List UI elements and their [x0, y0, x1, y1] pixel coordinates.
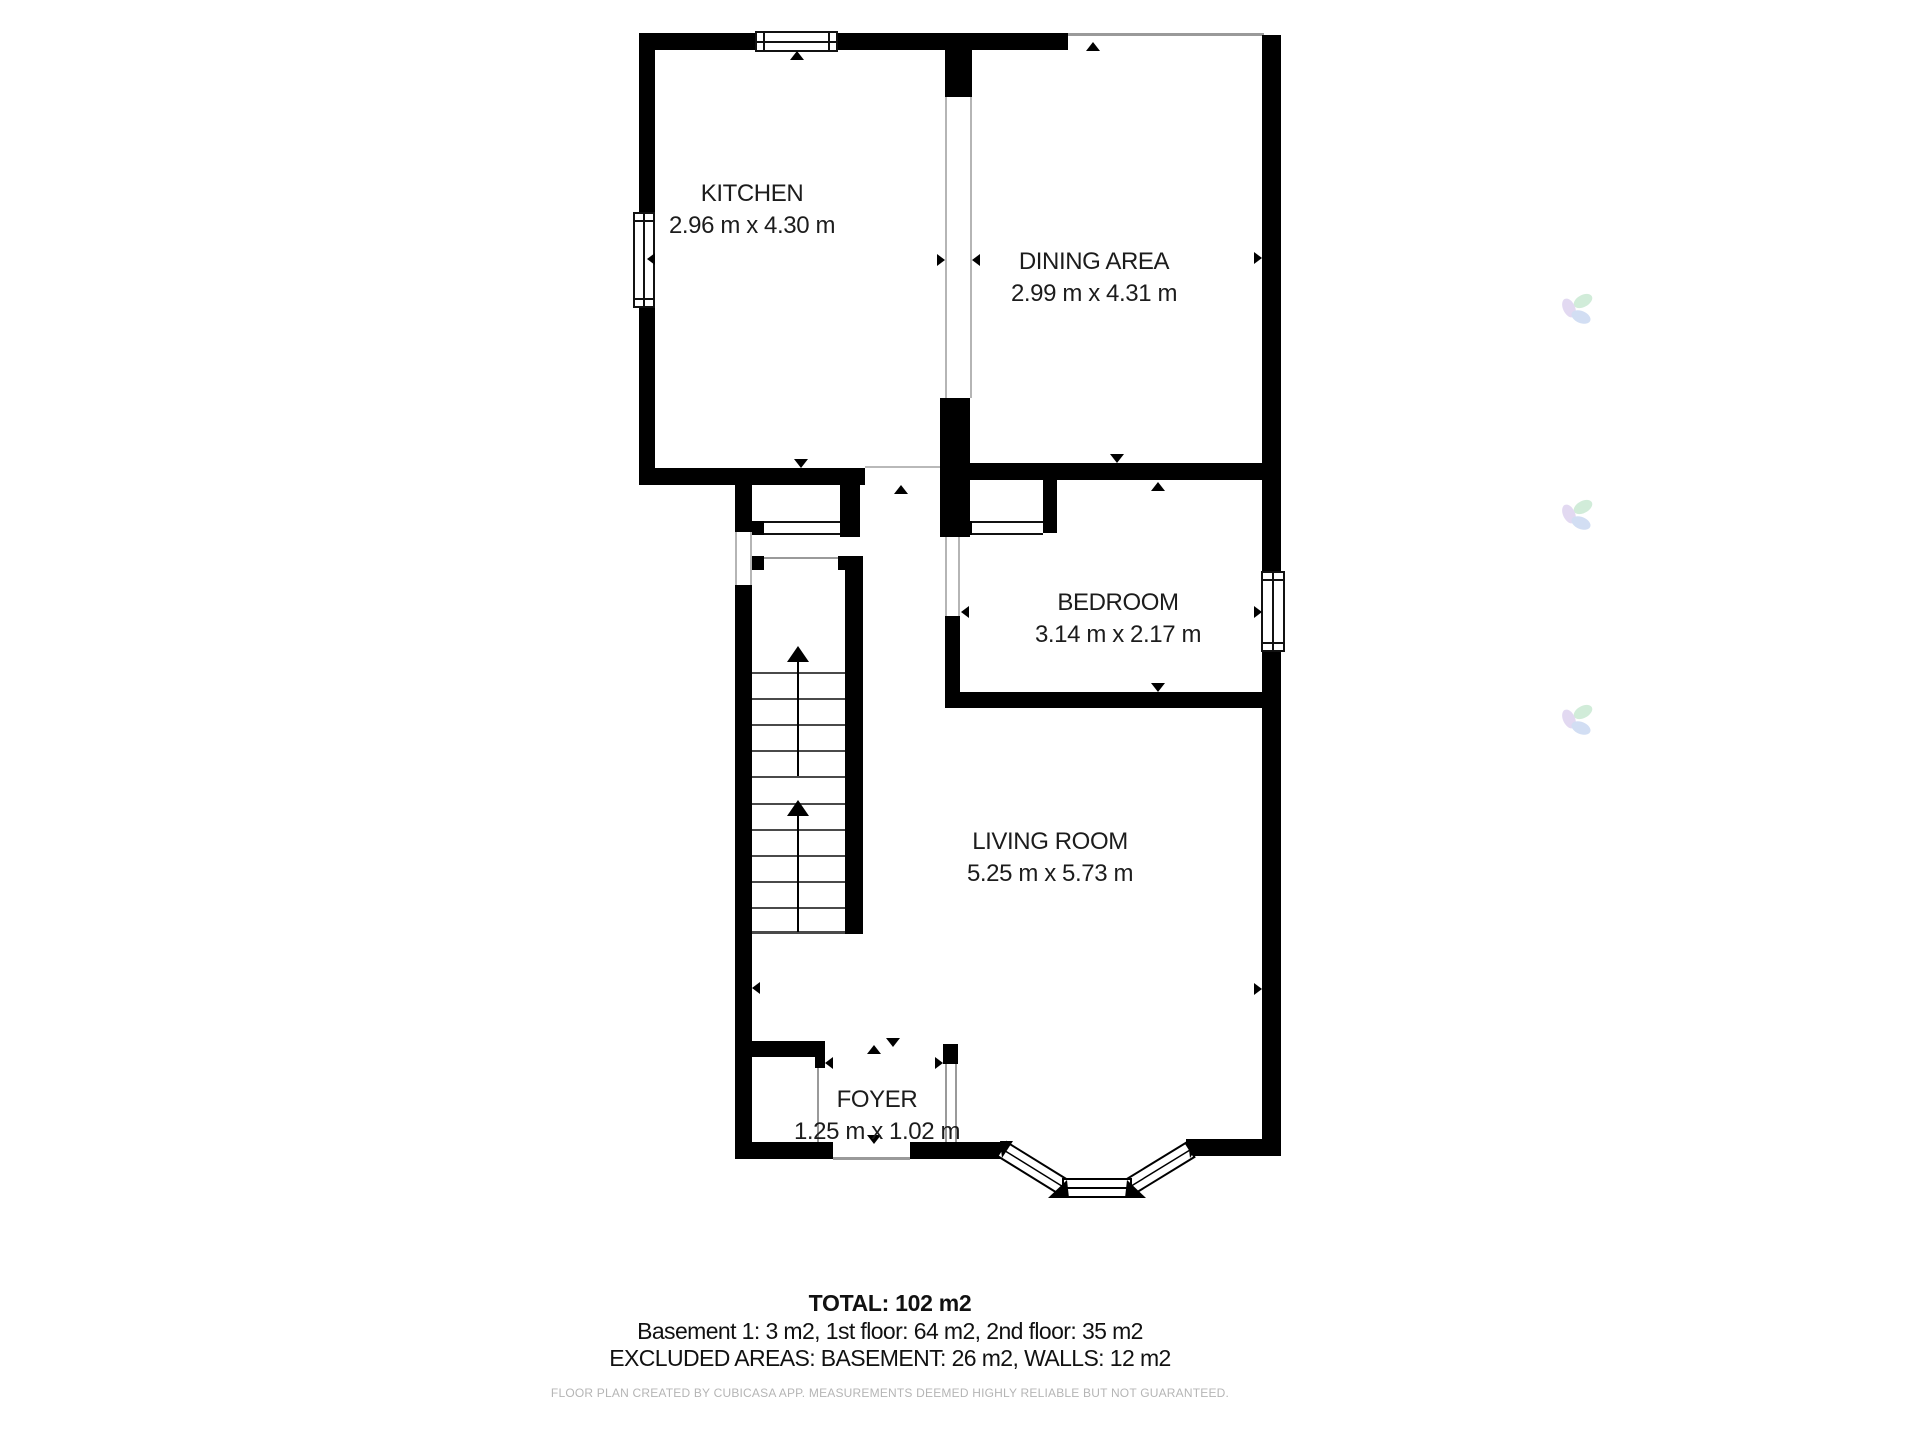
floor-plan-canvas: KITCHEN 2.96 m x 4.30 m DINING AREA 2.99…: [0, 0, 1920, 1440]
wall-foyer-right-stub: [943, 1044, 958, 1064]
cubicasa-watermark-icon: [1556, 699, 1600, 743]
stair-tread: [752, 776, 845, 778]
opening-arrow-dining-bottom-icon: [1110, 454, 1124, 463]
room-dimensions: 3.14 m x 2.17 m: [1035, 619, 1201, 651]
room-name: KITCHEN: [669, 178, 835, 210]
opening-arrow-foyer-left-icon: [825, 1057, 833, 1069]
wall-stairs-right: [845, 556, 863, 934]
room-dimensions: 2.99 m x 4.31 m: [1011, 278, 1177, 310]
wall-mid-horizontal: [940, 463, 1281, 480]
wall-bedroom-closet: [1043, 480, 1057, 533]
room-name: LIVING ROOM: [967, 826, 1133, 858]
floor-areas: Basement 1: 3 m2, 1st floor: 64 m2, 2nd …: [551, 1318, 1229, 1345]
room-label-dining-area: DINING AREA 2.99 m x 4.31 m: [1011, 246, 1177, 310]
window-cap: [635, 220, 653, 222]
opening-arrow-dining-top-icon: [1086, 42, 1100, 51]
opening-arrow-kitchen-left-icon: [647, 253, 655, 265]
opening-left-wall: [735, 532, 752, 585]
opening-arrow-bedroom-bottom-icon: [1151, 683, 1165, 692]
room-dimensions: 1.25 m x 1.02 m: [794, 1116, 960, 1148]
wall-foyer-closet-stub: [815, 1057, 825, 1068]
opening-arrow-bedroom-top-icon: [1151, 482, 1165, 491]
stair-arrow-shaft: [797, 660, 799, 776]
wall-foyer-closet-top: [752, 1041, 825, 1057]
wall-stairs-top-stub-left: [752, 556, 764, 570]
room-name: DINING AREA: [1011, 246, 1177, 278]
wall-top-open-edge: [1068, 33, 1264, 36]
wall-left-upper: [735, 485, 752, 532]
window-bedroom-right: [1261, 571, 1285, 652]
stair-arrow-shaft: [797, 814, 799, 932]
opening-arrow-living-left-icon: [752, 982, 760, 994]
opening-arrow-dining-right-icon: [1254, 252, 1262, 264]
opening-hall-top-edge: [865, 466, 940, 468]
window-cap: [1263, 579, 1283, 581]
cubicasa-watermark-icon: [1556, 494, 1600, 538]
front-door-threshold: [833, 1157, 910, 1160]
room-label-foyer: FOYER 1.25 m x 1.02 m: [794, 1084, 960, 1148]
room-dimensions: 2.96 m x 4.30 m: [669, 210, 835, 242]
opening-bedroom-left: [945, 537, 960, 616]
opening-arrow-kitchen-bottom-icon: [794, 459, 808, 468]
wall-stairs-top-stub-right: [838, 556, 857, 570]
window-kitchen-top: [755, 31, 838, 52]
wall-kitchen-dining-divider-top: [945, 50, 972, 97]
opening-arrow-divider-left-icon: [937, 254, 945, 266]
wall-vestibule-door-stub: [752, 521, 764, 535]
opening-arrow-foyer-right-icon: [935, 1057, 943, 1069]
bay-window: [988, 1132, 1208, 1212]
wall-top: [639, 33, 1068, 50]
room-dimensions: 5.25 m x 5.73 m: [967, 858, 1133, 890]
area-summary: TOTAL: 102 m2 Basement 1: 3 m2, 1st floo…: [551, 1288, 1229, 1400]
wall-bedroom-left: [945, 616, 960, 692]
window-cap: [635, 298, 653, 300]
room-name: BEDROOM: [1035, 587, 1201, 619]
wall-bedroom-bottom: [945, 692, 1262, 708]
opening-arrow-hall-icon: [894, 485, 908, 494]
wall-closet-door-stub: [958, 521, 972, 535]
wall-vestibule-right: [840, 485, 860, 537]
opening-arrow-bedroom-left-icon: [961, 606, 969, 618]
doorway-bedroom-closet: [972, 521, 1043, 535]
excluded-areas: EXCLUDED AREAS: BASEMENT: 26 m2, WALLS: …: [551, 1345, 1229, 1372]
opening-arrow-kitchen-window-icon: [790, 51, 804, 60]
room-name: FOYER: [794, 1084, 960, 1116]
window-cap: [1263, 642, 1283, 644]
window-pane-line: [643, 214, 645, 306]
window-pane-line: [1272, 573, 1274, 650]
doorway-vestibule: [764, 521, 840, 535]
window-pane-line: [757, 41, 836, 43]
opening-arrow-living-right-icon: [1254, 983, 1262, 995]
opening-arrow-divider-right-icon: [972, 254, 980, 266]
room-label-kitchen: KITCHEN 2.96 m x 4.30 m: [669, 178, 835, 242]
wall-left-lower: [735, 585, 752, 1159]
opening-arrow-foyer-down-icon: [886, 1038, 900, 1047]
cubicasa-watermark-icon: [1556, 288, 1600, 332]
stairs-top-edge: [764, 557, 838, 559]
window-cap: [763, 33, 765, 50]
room-label-living-room: LIVING ROOM 5.25 m x 5.73 m: [967, 826, 1133, 890]
opening-kitchen-dining: [945, 97, 972, 398]
opening-arrow-bedroom-window-icon: [1254, 606, 1262, 618]
window-cap: [828, 33, 830, 50]
room-label-bedroom: BEDROOM 3.14 m x 2.17 m: [1035, 587, 1201, 651]
total-area: TOTAL: 102 m2: [551, 1288, 1229, 1318]
wall-kitchen-bottom: [639, 468, 865, 485]
opening-arrow-foyer-up-icon: [867, 1045, 881, 1054]
disclaimer: FLOOR PLAN CREATED BY CUBICASA APP. MEAS…: [551, 1386, 1229, 1400]
